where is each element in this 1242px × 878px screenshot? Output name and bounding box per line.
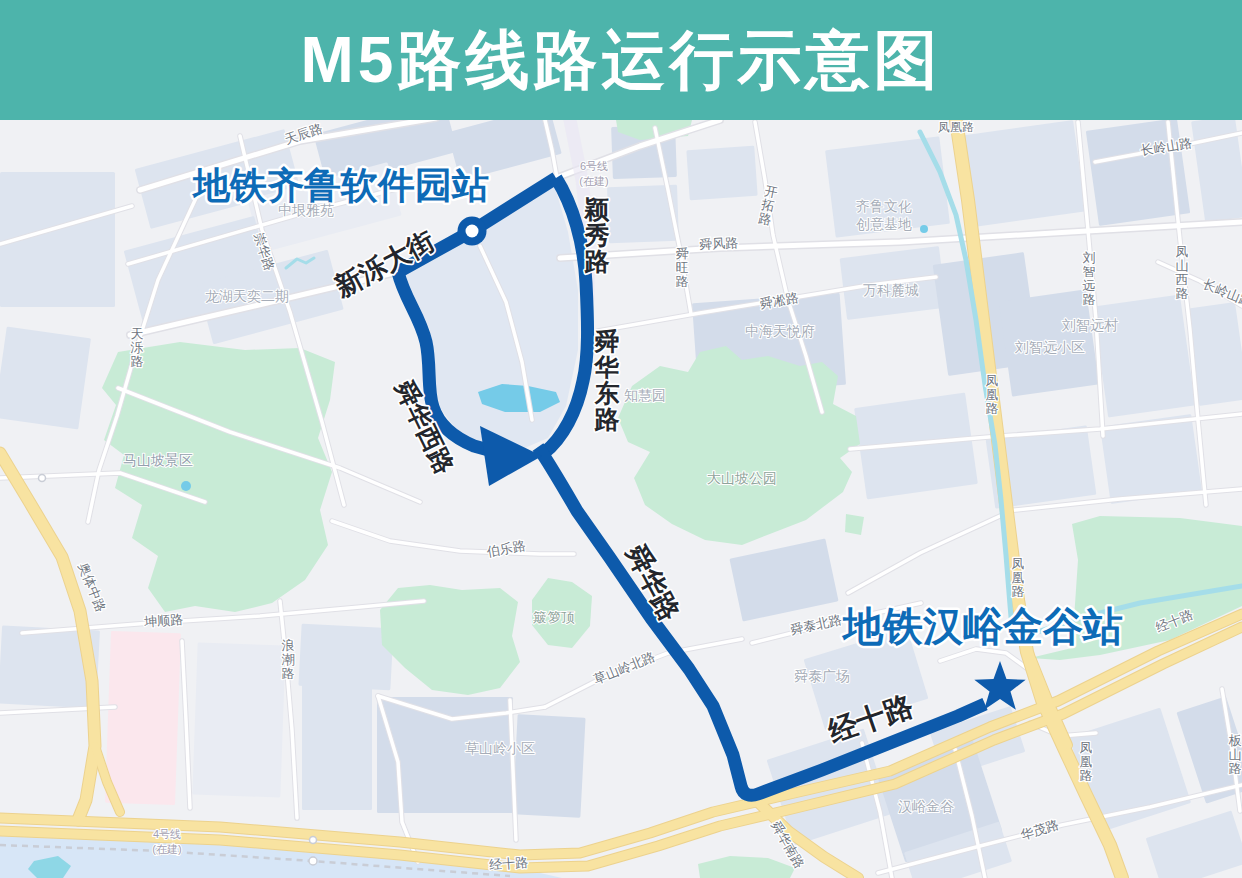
map-label: 草山岭小区	[465, 740, 535, 756]
park-area	[845, 514, 864, 535]
city-block	[1093, 294, 1196, 417]
station-name-label: 地铁汉峪金谷站	[841, 604, 1123, 648]
road-node	[39, 475, 46, 482]
map-label: 凤山西路	[1176, 244, 1189, 301]
map-label: 凤凰路	[986, 373, 999, 416]
map-label: 刘智远路	[1083, 250, 1096, 307]
city-block	[302, 642, 372, 810]
map-label: 舜华东路	[594, 327, 620, 433]
header-banner: M5路线路运行示意图	[0, 0, 1242, 120]
city-block	[686, 146, 757, 201]
map-label: 刘智远小区	[1014, 339, 1085, 355]
map-label: 刘智远村	[1061, 317, 1118, 333]
map-label: 大山坡公园	[707, 470, 777, 486]
map-label: 龙湖天奕二期	[205, 288, 289, 304]
city-block	[192, 643, 285, 798]
map-label: 经十路	[489, 855, 529, 873]
map-label: 凤凰路	[938, 120, 974, 134]
page-title: M5路线路运行示意图	[301, 28, 942, 92]
map-label: 中垠雅苑	[278, 202, 334, 218]
road-node	[309, 857, 317, 865]
map-label: 簸箩顶	[533, 609, 575, 625]
map-svg: 地铁齐鲁软件园站地铁汉峪金谷站新泺大街颖秀路舜华东路舜华西路舜华路经十路天辰路崇…	[0, 120, 1242, 878]
map-label: 中海天悦府	[745, 323, 815, 339]
map-label: 坤顺路	[143, 612, 184, 630]
map-label: 凤凰路	[1080, 740, 1093, 783]
map-label: 浪潮路	[282, 638, 295, 681]
map-label: 舜旺路	[676, 246, 689, 289]
map-label: 凤凰路	[1012, 556, 1025, 599]
pond	[920, 225, 928, 233]
map-label: 天泺路	[131, 326, 144, 369]
pond	[181, 481, 191, 491]
city-block	[105, 631, 181, 805]
map-label: 颖秀路	[584, 195, 611, 275]
city-block	[512, 714, 585, 817]
map-label: 舜泰广场	[794, 668, 850, 684]
road-node	[310, 837, 317, 844]
station-name-label: 地铁齐鲁软件园站	[191, 165, 489, 206]
map-canvas[interactable]: 地铁齐鲁软件园站地铁汉峪金谷站新泺大街颖秀路舜华东路舜华西路舜华路经十路天辰路崇…	[0, 120, 1242, 878]
map-label: 马山坡景区	[123, 452, 193, 468]
map-label: 舜风路	[699, 235, 739, 252]
map-label: 万科麓城	[863, 282, 919, 298]
origin-station-icon-center	[466, 225, 479, 238]
city-block	[0, 327, 91, 430]
map-label: 汉峪金谷	[898, 798, 954, 814]
map-label: 板山路	[1229, 733, 1242, 776]
map-label: 知慧园	[624, 387, 666, 403]
m5-route-map-page: M5路线路运行示意图 地铁齐鲁软件园站地铁汉峪金谷站新泺大街颖秀路舜华东路舜华西…	[0, 0, 1242, 878]
